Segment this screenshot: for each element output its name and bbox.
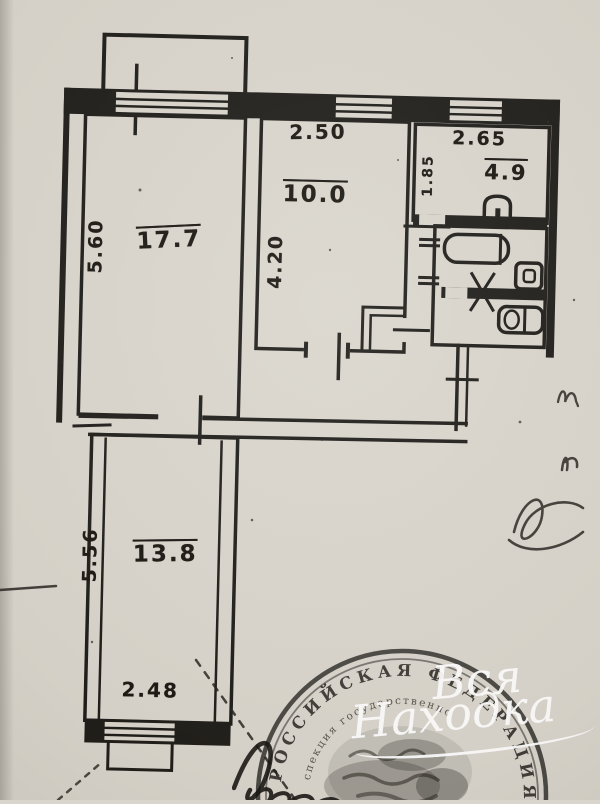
dim-width-kitchen: 2.65	[452, 129, 507, 149]
bathroom-walls	[432, 226, 547, 348]
dim-depth-room3: 5.56	[80, 515, 101, 595]
closet-inner	[370, 315, 403, 352]
sink-basin	[524, 270, 535, 282]
handwriting-stroke	[562, 458, 577, 470]
room-3-bottom-wall	[84, 718, 231, 746]
room-1-door-gap	[158, 412, 202, 423]
hall-right-wall-inner	[466, 346, 468, 426]
room-3-inner-right	[215, 442, 222, 722]
dimension-tick	[338, 334, 339, 378]
dim-depth-room2: 4.20	[266, 221, 287, 301]
dim-area-room2: 10.0	[282, 183, 347, 208]
dim-area-room3: 13.8	[133, 543, 198, 567]
toilet-tank	[524, 307, 525, 333]
left-outer-wall	[56, 88, 70, 423]
dimension-tick	[74, 424, 110, 427]
scan-edge-shadow	[0, 0, 14, 800]
dimension-tick	[394, 330, 428, 331]
dim-depth-room1: 5.60	[86, 206, 107, 286]
sink-icon	[515, 263, 542, 290]
hall-right-wall	[456, 345, 458, 429]
bottom-ledge	[108, 743, 173, 771]
dim-width-room2: 2.50	[289, 122, 347, 143]
toilet-bowl	[504, 310, 518, 328]
dim-area-room1: 17.7	[136, 228, 202, 254]
stove-knob	[495, 208, 500, 217]
wc-divider-gap	[445, 287, 467, 299]
dimension-tick	[447, 379, 477, 380]
dim-width-room3: 2.48	[121, 679, 179, 700]
dim-area-kitchen: 4.9	[484, 162, 528, 184]
bathtub-end	[500, 235, 501, 263]
room-2-door-gap	[304, 346, 350, 355]
dim-depth-kitchen: 1.85	[420, 137, 436, 213]
corridor-wall-upper	[80, 414, 466, 425]
